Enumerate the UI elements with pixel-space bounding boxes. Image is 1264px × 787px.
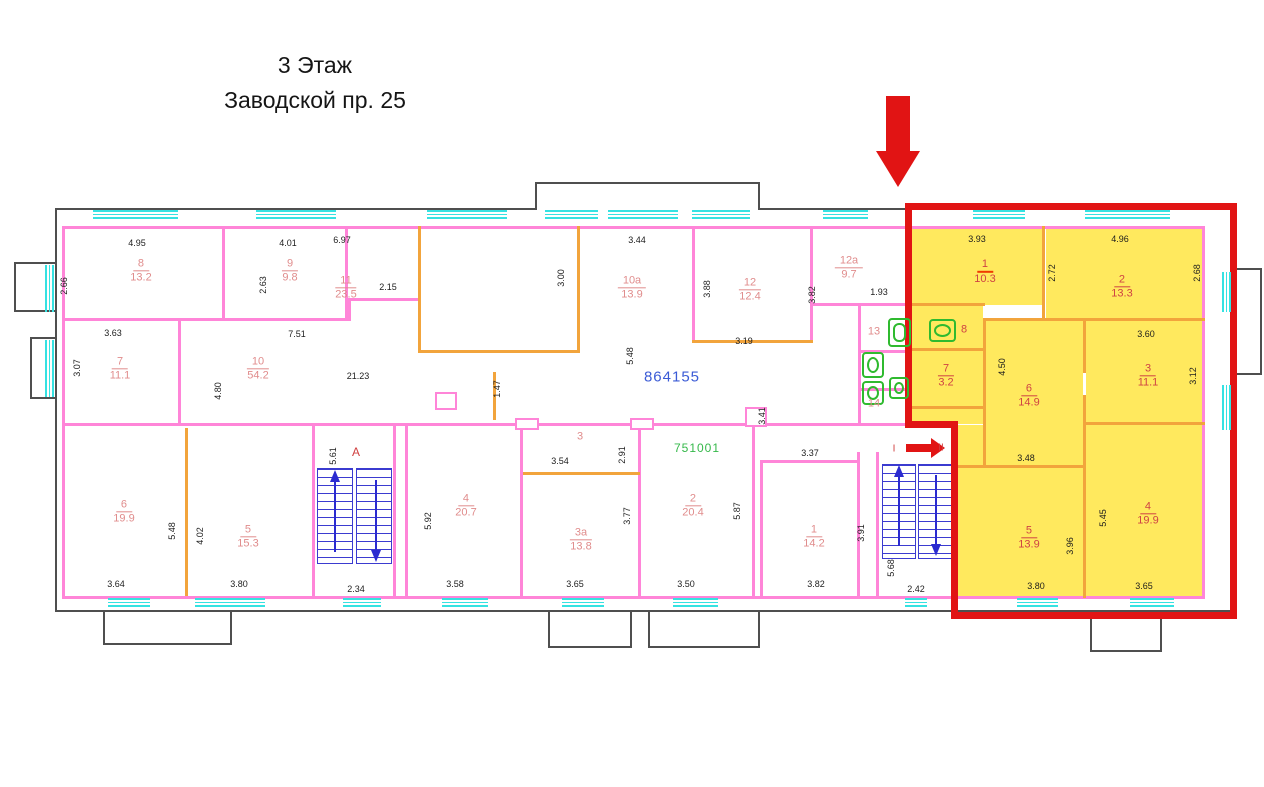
room-number: 6 [116, 498, 132, 512]
room-number: 6 [1021, 382, 1037, 396]
dimension-label: 2.66 [59, 277, 69, 295]
wall [348, 298, 421, 301]
wall [752, 426, 755, 596]
wall [638, 426, 641, 596]
dimension-label: 7.51 [288, 329, 306, 339]
dimension-label: 5.92 [423, 512, 433, 530]
highlight-border-left-lower [951, 425, 958, 619]
room-label-6-num-13: 13 [868, 325, 880, 338]
dimension-label: 4.96 [1111, 234, 1129, 244]
room-area: 20.7 [455, 507, 476, 520]
wall [535, 182, 537, 210]
dimension-label: 3.63 [104, 328, 122, 338]
window-icon [1085, 210, 1170, 219]
room-number: 3а [570, 526, 592, 540]
room-area: 12.4 [739, 291, 761, 304]
window-icon [1222, 272, 1231, 312]
room-label-3-num-10а: 10а13.9 [618, 274, 646, 301]
toilet-icon-inner [867, 357, 879, 373]
wall [692, 226, 695, 343]
wall [418, 350, 580, 353]
room-number: 8 [133, 257, 149, 271]
annotation-864155: 864155 [644, 369, 700, 386]
dimension-label: 4.01 [279, 238, 297, 248]
wall [912, 226, 1203, 229]
wall [222, 226, 225, 321]
staircase-2-arrows-icon [882, 460, 956, 564]
dimension-label: 5.68 [886, 559, 896, 577]
dimension-label: 3.82 [807, 579, 825, 589]
dimension-label: 2.68 [1192, 264, 1202, 282]
dimension-label: 3.96 [1065, 537, 1075, 555]
dimension-label: 6.97 [333, 235, 351, 245]
dimension-label: 3.07 [72, 359, 82, 377]
dimension-label: 3.50 [677, 579, 695, 589]
wall [520, 426, 523, 596]
room-area: 13.9 [1018, 539, 1039, 552]
room-area: 14.9 [1018, 397, 1039, 410]
wall [1202, 226, 1205, 599]
room-number: 10а [618, 274, 646, 288]
wall [912, 406, 985, 409]
wall [185, 428, 188, 596]
room-label-19-num-7: 73.2 [938, 362, 954, 389]
room-area: 54.2 [247, 370, 269, 383]
window-icon [108, 598, 150, 607]
room-number: 9 [282, 257, 298, 271]
wall [103, 612, 105, 645]
staircase-a-arrows-icon [317, 464, 397, 569]
dimension-label: 1.47 [492, 380, 502, 398]
dimension-label: 3.91 [856, 524, 866, 542]
room-number: 1 [806, 523, 822, 537]
highlight-border-top [905, 203, 1237, 210]
room-label-11-num-5: 515.3 [237, 523, 258, 550]
dimension-label: 2.72 [1047, 264, 1057, 282]
window-icon [608, 210, 678, 219]
room-label-4-num-12: 1212.4 [739, 276, 761, 303]
room-label-5-num-12а: 12а9.7 [835, 254, 863, 281]
window-icon [45, 265, 54, 312]
room-label-12-num-4: 420.7 [455, 492, 476, 519]
window-icon [562, 598, 604, 607]
window-icon [343, 598, 381, 607]
wall [1260, 268, 1262, 375]
wall [30, 337, 32, 399]
room-area: 10.3 [974, 273, 995, 286]
dimension-label: 2.91 [617, 446, 627, 464]
room-label-9-num-10: 1054.2 [247, 355, 269, 382]
tub-icon [888, 318, 911, 347]
window-icon [692, 210, 750, 219]
wall [760, 460, 860, 463]
room-number: 4 [1140, 500, 1156, 514]
dimension-label: 3.58 [446, 579, 464, 589]
dimension-label: 3.88 [702, 280, 712, 298]
room-label-1-num-9: 99.8 [282, 257, 298, 284]
room-number: 3 [577, 430, 583, 443]
window-icon [45, 340, 54, 397]
room-area: 19.9 [113, 513, 134, 526]
room-number: 12 [739, 276, 761, 290]
room-number: 7 [938, 362, 954, 376]
sink-icon [889, 377, 909, 399]
room-area: 11.1 [1138, 377, 1159, 390]
window-icon [195, 598, 265, 607]
room-label-15-num-2: 220.4 [682, 492, 703, 519]
room-label-24-num-8: 8 [961, 323, 967, 336]
window-icon [545, 210, 598, 219]
floor-plan-page: 3 Этаж Заводской пр. 25 [0, 0, 1264, 787]
window-icon [427, 210, 507, 219]
room-number: 5 [1021, 524, 1037, 538]
dimension-label: 3.82 [807, 286, 817, 304]
wall [418, 226, 421, 353]
wall [178, 318, 181, 426]
room-label-20-num-6: 614.9 [1018, 382, 1039, 409]
room-label-10-num-6: 619.9 [113, 498, 134, 525]
wall [405, 426, 408, 596]
wall [62, 423, 907, 426]
dimension-label: 5.87 [732, 502, 742, 520]
wall [62, 226, 907, 229]
room-area: 9.7 [835, 269, 863, 282]
wall [230, 612, 232, 645]
room-label-2-num-11: 1123.5 [335, 274, 356, 301]
dimension-label: 3.48 [1017, 453, 1035, 463]
room-area: 19.9 [1137, 515, 1158, 528]
wall [30, 397, 57, 399]
dimension-label: 3.19 [735, 336, 753, 346]
wall [1083, 318, 1086, 373]
window-icon [973, 210, 1025, 219]
wall [1042, 226, 1045, 321]
room-number: 14 [868, 397, 880, 410]
plan-title: 3 Этаж Заводской пр. 25 [185, 48, 445, 117]
annotation-I: I [893, 444, 896, 455]
wall [760, 460, 763, 596]
wall [548, 646, 632, 648]
wall [810, 226, 813, 343]
dimension-label: 5.45 [1098, 509, 1108, 527]
wall [535, 182, 760, 184]
room-label-21-num-3: 311.1 [1138, 362, 1159, 389]
dimension-label: 3.12 [1188, 367, 1198, 385]
annotation-А: А [352, 445, 360, 459]
room-label-13-num-3: 3 [577, 430, 583, 443]
room-number: 12а [835, 254, 863, 268]
room-area: 3.2 [938, 377, 954, 390]
window-icon [93, 210, 178, 219]
dimension-label: 3.80 [1027, 581, 1045, 591]
wall [577, 226, 580, 353]
wall [14, 262, 57, 264]
wall [1090, 650, 1162, 652]
room-number: 5 [240, 523, 256, 537]
dimension-label: 4.95 [128, 238, 146, 248]
annotation-II: II [938, 443, 944, 454]
dimension-label: 4.80 [213, 382, 223, 400]
sink-icon-inner [894, 382, 904, 394]
room-area: 20.4 [682, 507, 703, 520]
dimension-label: 3.44 [628, 235, 646, 245]
dimension-label: 3.37 [801, 448, 819, 458]
dimension-label: 3.00 [556, 269, 566, 287]
dimension-label: 3.41 [757, 407, 767, 425]
dimension-label: 3.77 [622, 507, 632, 525]
wall [983, 318, 986, 468]
window-icon [823, 210, 868, 219]
room-label-17-num-1: 110.3 [974, 258, 995, 286]
dimension-label: 5.61 [328, 447, 338, 465]
wall [758, 612, 760, 648]
room-label-0-num-8: 813.2 [130, 257, 151, 284]
wall [14, 262, 16, 312]
window-icon [905, 598, 927, 607]
dimension-label: 2.63 [258, 276, 268, 294]
wall-pier [515, 418, 539, 430]
room-number: 11 [335, 274, 356, 288]
wall-pier [630, 418, 654, 430]
wall [648, 646, 760, 648]
dimension-label: 3.65 [1135, 581, 1153, 591]
dimension-label: 2.15 [379, 282, 397, 292]
window-icon [442, 598, 488, 607]
washer-icon-inner [934, 324, 951, 337]
room-number: 2 [1114, 273, 1130, 287]
room-area: 13.8 [570, 541, 592, 554]
dimension-label: 2.34 [347, 584, 365, 594]
highlight-border-right [1230, 203, 1237, 619]
room-area: 9.8 [282, 272, 298, 285]
wall [912, 348, 985, 351]
wall [912, 303, 985, 306]
room-number: 10 [247, 355, 269, 369]
wall [876, 452, 879, 598]
room-number: 8 [961, 323, 967, 336]
window-icon [256, 210, 336, 219]
annotation-751001: 751001 [674, 441, 720, 455]
dimension-label: 3.80 [230, 579, 248, 589]
wall [62, 318, 350, 321]
washer-icon [929, 319, 956, 342]
room-number: 4 [458, 492, 474, 506]
wall [55, 208, 57, 612]
room-area: 13.3 [1111, 288, 1132, 301]
dimension-label: 5.48 [167, 522, 177, 540]
room-area: 13.9 [618, 289, 646, 302]
room-label-14-num-3а: 3а13.8 [570, 526, 592, 553]
window-icon [673, 598, 718, 607]
room-number: 7 [112, 355, 128, 369]
wall [103, 643, 232, 645]
dimension-label: 3.54 [551, 456, 569, 466]
room-label-8-num-7: 711.1 [110, 355, 131, 382]
wall [758, 182, 760, 210]
dimension-label: 4.50 [997, 358, 1007, 376]
wall [858, 303, 861, 426]
entrance-arrow-shaft [906, 444, 932, 452]
room-area: 15.3 [237, 538, 258, 551]
highlight-border-jog [905, 421, 958, 428]
wall [648, 612, 650, 648]
dimension-label: 3.60 [1137, 329, 1155, 339]
room-area: 11.1 [110, 370, 131, 383]
room-number: 13 [868, 325, 880, 338]
big-down-arrow-shaft [886, 96, 910, 152]
room-label-7-num-14: 14 [868, 397, 880, 410]
window-icon [1222, 385, 1231, 430]
window-icon [1017, 598, 1058, 607]
room-area: 14.2 [803, 538, 824, 551]
dimension-label: 5.48 [625, 347, 635, 365]
toilet-icon [862, 352, 884, 378]
dimension-label: 3.65 [566, 579, 584, 589]
title-address: Заводской пр. 25 [185, 83, 445, 118]
room-label-18-num-2: 213.3 [1111, 273, 1132, 300]
wall [1083, 395, 1086, 598]
dimension-label: 3.64 [107, 579, 125, 589]
room-label-16-num-1: 114.2 [803, 523, 824, 550]
dimension-label: 4.02 [195, 527, 205, 545]
wall [312, 426, 315, 596]
wall [983, 318, 1205, 321]
wall [30, 337, 57, 339]
room-number: 1 [977, 258, 993, 273]
wall [956, 465, 1085, 468]
highlight-border-bottom [951, 612, 1237, 619]
room-area: 23.5 [335, 289, 356, 302]
room-label-23-num-4: 419.9 [1137, 500, 1158, 527]
wall-pier [435, 392, 457, 410]
room-area: 13.2 [130, 272, 151, 285]
big-down-arrow-head [876, 151, 920, 187]
window-icon [1130, 598, 1174, 607]
dimension-label: 3.93 [968, 234, 986, 244]
dimension-label: 2.42 [907, 584, 925, 594]
dimension-label: 21.23 [347, 371, 370, 381]
dimension-label: 1.93 [870, 287, 888, 297]
wall [1083, 422, 1205, 425]
title-floor: 3 Этаж [185, 48, 445, 83]
wall [630, 612, 632, 648]
room-number: 2 [685, 492, 701, 506]
room-number: 3 [1140, 362, 1156, 376]
wall [548, 612, 550, 648]
tub-icon-inner [893, 323, 906, 342]
wall [523, 472, 640, 475]
room-label-22-num-5: 513.9 [1018, 524, 1039, 551]
